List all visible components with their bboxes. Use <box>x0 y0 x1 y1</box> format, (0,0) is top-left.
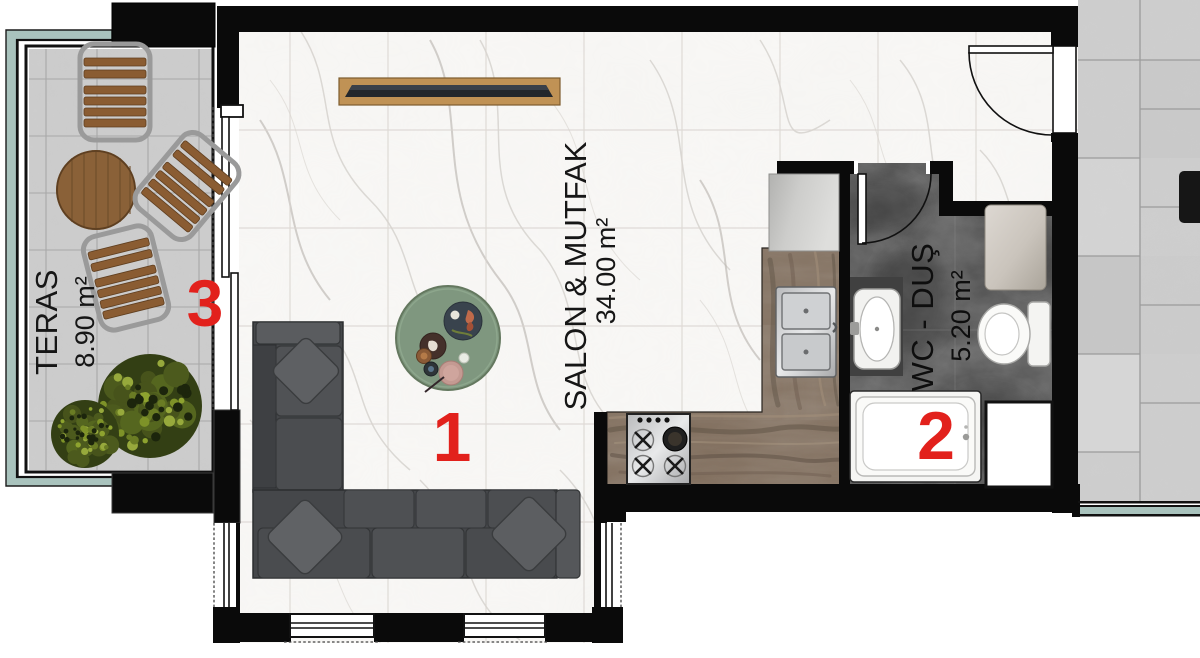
svg-text:34.00 m²: 34.00 m² <box>591 218 621 325</box>
svg-text:8.90 m²: 8.90 m² <box>70 276 100 368</box>
svg-text:3: 3 <box>187 266 224 340</box>
svg-text:2: 2 <box>917 398 955 474</box>
svg-text:5.20 m²: 5.20 m² <box>946 270 976 362</box>
svg-text:SALON & MUTFAK: SALON & MUTFAK <box>558 141 593 410</box>
svg-text:TERAS: TERAS <box>29 269 64 375</box>
svg-text:WC - DUŞ: WC - DUŞ <box>905 243 940 392</box>
svg-text:1: 1 <box>433 398 472 476</box>
